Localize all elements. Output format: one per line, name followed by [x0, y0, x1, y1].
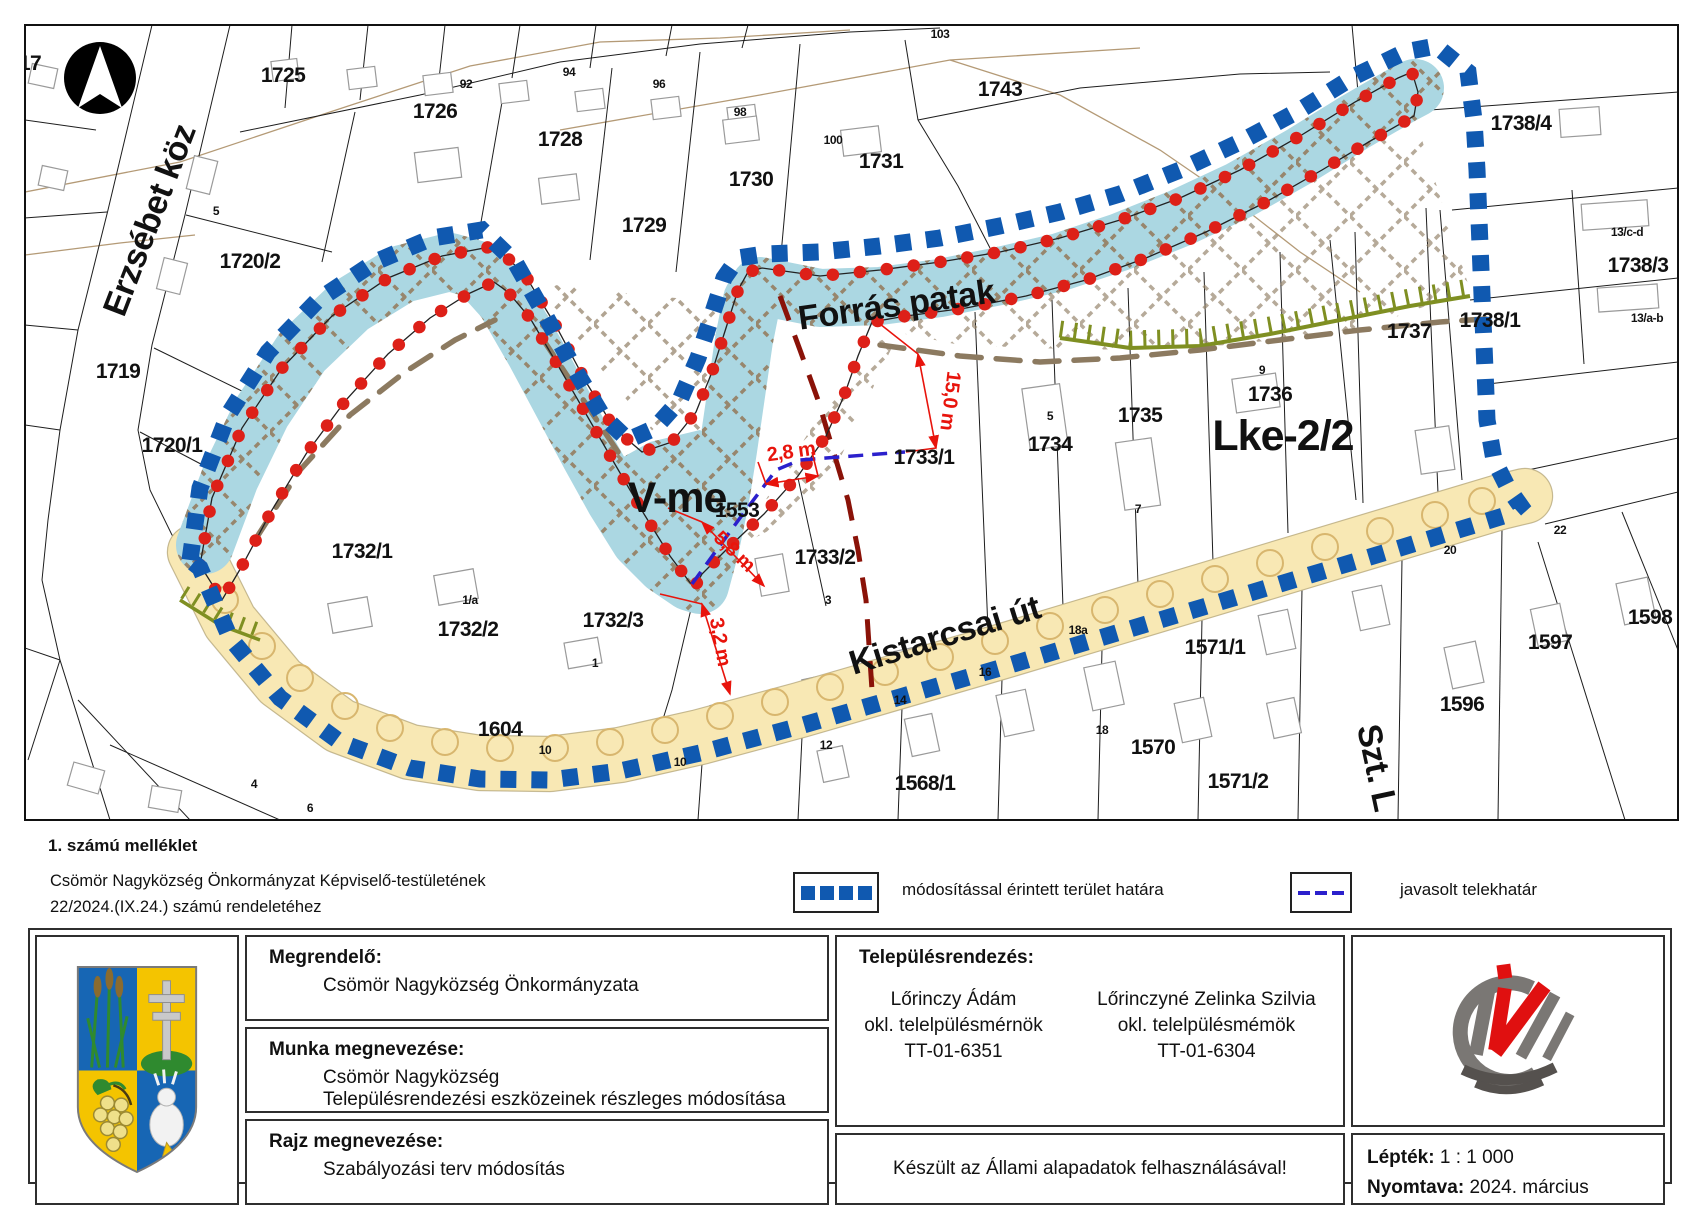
parcel-label: 1732/3 — [583, 609, 644, 632]
parcel-label: 1568/1 — [895, 772, 957, 795]
drawing-cell: Rajz megnevezése: Szabályozási terv módo… — [245, 1119, 829, 1205]
house-number-label: 13/a-b — [1631, 311, 1663, 325]
company-logo — [1433, 956, 1583, 1106]
planner-2-name: Lőrinczyné Zelinka Szilvia — [1097, 987, 1316, 1013]
house-number-label: 98 — [734, 105, 747, 119]
legend-label-proposed-boundary: javasolt telekhatár — [1400, 880, 1537, 900]
house-number-label: 13/c-d — [1611, 225, 1643, 239]
work-cell: Munka megnevezése: Csömör Nagyközség Tel… — [245, 1027, 829, 1113]
printed-value: 2024. március — [1469, 1177, 1588, 1198]
house-number-label: 92 — [460, 77, 473, 91]
house-number-label: 5 — [213, 204, 220, 218]
scale-cell: Lépték: 1 : 1 000 Nyomtava: 2024. márciu… — [1351, 1133, 1665, 1205]
parcel-label: 1720/2 — [220, 250, 281, 273]
parcel-label: 1719 — [96, 360, 140, 383]
house-number-label: 10 — [674, 755, 687, 769]
scale-row: Lépték: 1 : 1 000 — [1367, 1143, 1663, 1173]
parcel-label: 1597 — [1528, 631, 1572, 654]
parcel-label: 1732/2 — [438, 618, 499, 641]
base-data-note: Készült az Állami alapadatok felhasználá… — [837, 1135, 1343, 1203]
work-line1: Csömör Nagyközség — [247, 1061, 827, 1089]
legend-label-modification-boundary: módosítással érintett terület határa — [902, 880, 1164, 900]
parcel-label: 1726 — [413, 100, 457, 123]
blue-square-icon — [820, 886, 834, 900]
legend-symbol-modification-boundary — [793, 872, 879, 913]
ordinance-line2: 22/2024.(IX.24.) számú rendeletéhez — [50, 898, 322, 917]
planning-label: Településrendezés: — [837, 937, 1343, 969]
blue-dash-icon — [1298, 891, 1310, 895]
base-data-cell: Készült az Állami alapadatok felhasználá… — [835, 1133, 1345, 1205]
parcel-label: 1720/1 — [142, 434, 204, 457]
parcel-label: 1598 — [1628, 606, 1673, 629]
printed-row: Nyomtava: 2024. március — [1367, 1173, 1663, 1203]
planner-2: Lőrinczyné Zelinka Szilvia okl. telelpül… — [1097, 987, 1316, 1065]
parcel-label: 1730 — [729, 168, 773, 191]
parcel-label: 1725 — [261, 64, 306, 87]
ordinance-line1: Csömör Nagyközség Önkormányzat Képviselő… — [50, 872, 486, 891]
title-block: Megrendelő: Csömör Nagyközség Önkormányz… — [28, 928, 1672, 1184]
logo-cell — [1351, 935, 1665, 1127]
client-label: Megrendelő: — [247, 937, 827, 969]
work-label: Munka megnevezése: — [247, 1029, 827, 1061]
parcel-label: 1737 — [1387, 320, 1431, 343]
house-number-label: 96 — [653, 77, 666, 91]
csomor-coat-of-arms — [68, 959, 206, 1181]
planning-column: Településrendezés: Lőrinczy Ádám okl. te… — [835, 935, 1345, 1205]
zone-label: Lke-2/2 — [1212, 412, 1353, 460]
parcel-label: 1571/2 — [1208, 770, 1269, 793]
planner-1-reg: TT-01-6351 — [864, 1039, 1042, 1065]
planner-2-reg: TT-01-6304 — [1097, 1039, 1316, 1065]
house-number-label: 7 — [1135, 502, 1142, 516]
description-column: Megrendelő: Csömör Nagyközség Önkormányz… — [245, 935, 829, 1205]
parcel-label: 17 — [19, 52, 41, 75]
planner-2-title: okl. telelpülésmémök — [1097, 1013, 1316, 1039]
scale-value: 1 : 1 000 — [1440, 1147, 1514, 1168]
house-number-label: 22 — [1554, 523, 1567, 537]
house-number-label: 12 — [820, 738, 833, 752]
parcel-label: 1743 — [978, 78, 1022, 101]
house-number-label: 3 — [825, 593, 832, 607]
parcel-label: 1735 — [1118, 404, 1163, 427]
house-number-label: 94 — [563, 65, 576, 79]
parcel-label: 1738/1 — [1460, 309, 1522, 332]
parcel-label: 1736 — [1248, 383, 1292, 406]
logo-column: Lépték: 1 : 1 000 Nyomtava: 2024. márciu… — [1351, 935, 1665, 1205]
blue-dash-icon — [1315, 891, 1327, 895]
blue-square-icon — [801, 886, 815, 900]
planner-1: Lőrinczy Ádám okl. telelpülésmérnök TT-0… — [864, 987, 1042, 1065]
planner-1-title: okl. telelpülésmérnök — [864, 1013, 1042, 1039]
house-number-label: 18 — [1096, 723, 1109, 737]
attachment-title: 1. számú melléklet — [48, 836, 197, 856]
coat-of-arms-cell — [35, 935, 239, 1205]
parcel-label: 1733/1 — [894, 446, 956, 469]
parcel-label: 1596 — [1440, 693, 1484, 716]
client-value: Csömör Nagyközség Önkormányzata — [247, 969, 827, 997]
parcel-label: 1734 — [1028, 433, 1073, 456]
house-number-label: 103 — [931, 27, 951, 41]
parcel-label: 1728 — [538, 128, 583, 151]
house-number-label: 10 — [539, 743, 552, 757]
house-number-label: 4 — [251, 777, 258, 791]
north-arrow-icon — [64, 42, 136, 114]
zone-label: V-me — [628, 474, 727, 522]
client-cell: Megrendelő: Csömör Nagyközség Önkormányz… — [245, 935, 829, 1021]
planner-1-name: Lőrinczy Ádám — [864, 987, 1042, 1013]
house-number-label: 100 — [824, 133, 844, 147]
house-number-label: 18a — [1069, 623, 1089, 637]
parcel-label: 1571/1 — [1185, 636, 1247, 659]
parcel-label: 1738/4 — [1491, 112, 1553, 135]
work-line2: Településrendezési eszközeinek részleges… — [247, 1089, 827, 1111]
house-number-label: 6 — [307, 801, 314, 815]
legend-symbol-proposed-boundary — [1290, 872, 1352, 913]
parcel-label: 1731 — [859, 150, 904, 173]
plan-sheet: { "notes": { "attachment": "1. számú mel… — [0, 0, 1703, 1203]
blue-dash-icon — [1332, 891, 1344, 895]
house-number-label: 1 — [592, 656, 599, 670]
drawing-value: Szabályozási terv módosítás — [247, 1153, 827, 1181]
scale-label: Lépték: — [1367, 1147, 1435, 1168]
blue-square-icon — [839, 886, 853, 900]
parcel-label: 1732/1 — [332, 540, 394, 563]
parcel-label: 1729 — [622, 214, 666, 237]
house-number-label: 14 — [894, 693, 907, 707]
printed-label: Nyomtava: — [1367, 1177, 1464, 1198]
house-number-label: 20 — [1444, 543, 1457, 557]
house-number-label: 16 — [979, 665, 992, 679]
house-number-label: 5 — [1047, 409, 1054, 423]
planning-cell: Településrendezés: Lőrinczy Ádám okl. te… — [835, 935, 1345, 1127]
parcel-label: 1738/3 — [1608, 254, 1669, 277]
parcel-label: 1570 — [1131, 736, 1175, 759]
house-number-label: 1/a — [462, 593, 478, 607]
parcel-label: 1733/2 — [795, 546, 856, 569]
parcel-label: 1604 — [478, 718, 523, 741]
house-number-label: 9 — [1259, 363, 1266, 377]
drawing-label: Rajz megnevezése: — [247, 1121, 827, 1153]
blue-square-icon — [858, 886, 872, 900]
